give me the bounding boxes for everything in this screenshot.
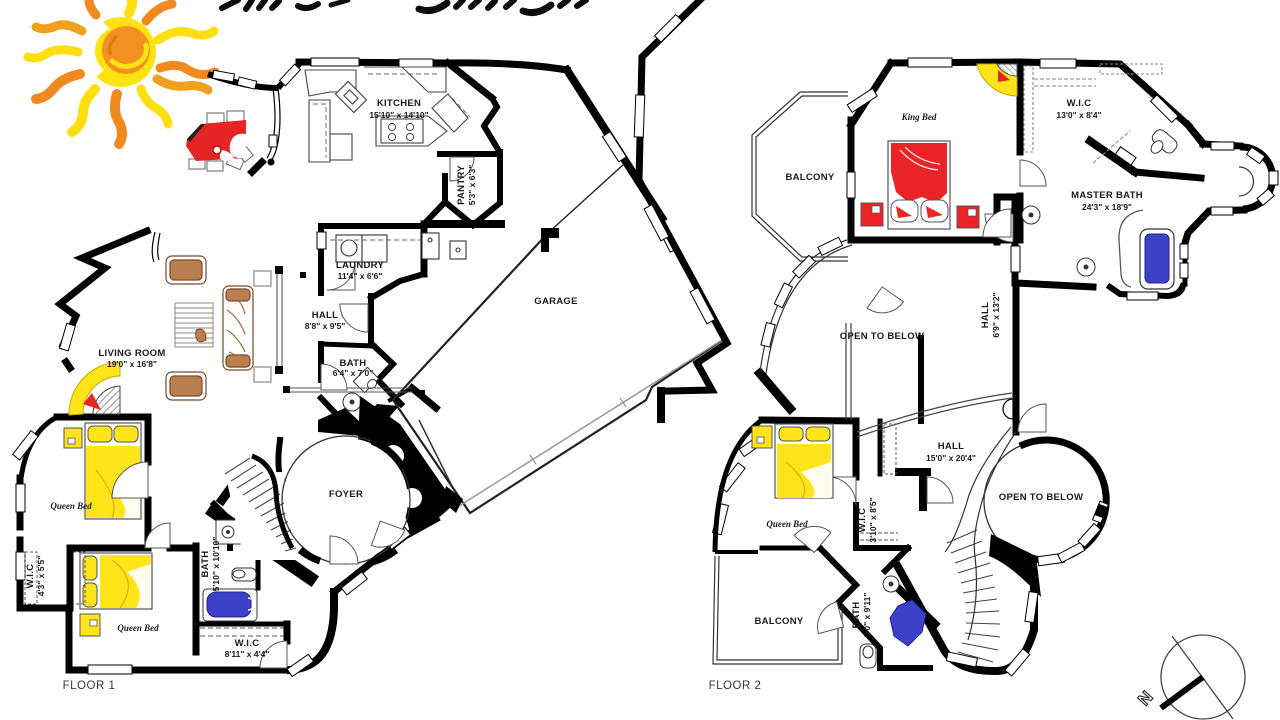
svg-text:W.I.C: W.I.C [1067,98,1092,109]
svg-text:BALCONY: BALCONY [754,616,803,627]
svg-text:FOYER: FOYER [329,489,363,500]
svg-text:PANTRY: PANTRY [456,165,467,205]
svg-text:FLOOR 1: FLOOR 1 [63,680,116,692]
svg-text:HALL: HALL [938,441,965,452]
svg-text:BATH: BATH [851,602,862,629]
svg-text:19'0" x 16'8": 19'0" x 16'8" [107,359,157,369]
svg-text:8'11" x 4'4": 8'11" x 4'4" [225,649,270,659]
svg-text:9'0" x 9'11": 9'0" x 9'11" [862,593,872,638]
svg-text:OPEN TO BELOW: OPEN TO BELOW [999,492,1083,503]
svg-text:OPEN TO BELOW: OPEN TO BELOW [840,331,924,342]
svg-text:HALL: HALL [980,302,991,329]
svg-text:BATH: BATH [200,551,211,578]
svg-text:W.I.C: W.I.C [25,564,36,589]
svg-text:11'4" x 6'6": 11'4" x 6'6" [338,271,383,281]
svg-text:4'3" x 5'5": 4'3" x 5'5" [36,556,46,596]
svg-text:Queen Bed: Queen Bed [50,501,92,511]
svg-text:5'3" x 6'3": 5'3" x 6'3" [467,165,477,205]
svg-text:W.I.C: W.I.C [235,638,260,649]
svg-text:3'10" x 8'5": 3'10" x 8'5" [868,497,878,542]
svg-text:LAUNDRY: LAUNDRY [336,260,385,271]
svg-text:13'0" x 8'4": 13'0" x 8'4" [1056,110,1101,120]
svg-text:8'8" x 9'5": 8'8" x 9'5" [305,321,345,331]
svg-text:HALL: HALL [312,310,339,321]
svg-text:GARAGE: GARAGE [534,296,578,307]
svg-text:LIVING ROOM: LIVING ROOM [98,348,165,359]
svg-text:BALCONY: BALCONY [785,172,834,183]
svg-text:6'9" x 13'2": 6'9" x 13'2" [991,292,1001,337]
svg-text:6'4" x 7'0": 6'4" x 7'0" [333,368,373,378]
svg-text:Queen Bed: Queen Bed [117,623,159,633]
svg-text:15'0" x 20'4": 15'0" x 20'4" [926,453,976,463]
svg-text:5'10" x 10'10": 5'10" x 10'10" [211,537,221,592]
svg-text:W.I.C: W.I.C [857,508,868,533]
svg-text:Queen Bed: Queen Bed [766,519,808,529]
svg-text:24'3" x 18'9": 24'3" x 18'9" [1082,202,1132,212]
svg-text:15'10" x 14'10": 15'10" x 14'10" [369,110,428,120]
svg-text:MASTER BATH: MASTER BATH [1071,190,1143,201]
svg-text:KITCHEN: KITCHEN [377,98,421,109]
svg-text:King Bed: King Bed [901,112,937,122]
svg-text:FLOOR 2: FLOOR 2 [709,680,762,692]
